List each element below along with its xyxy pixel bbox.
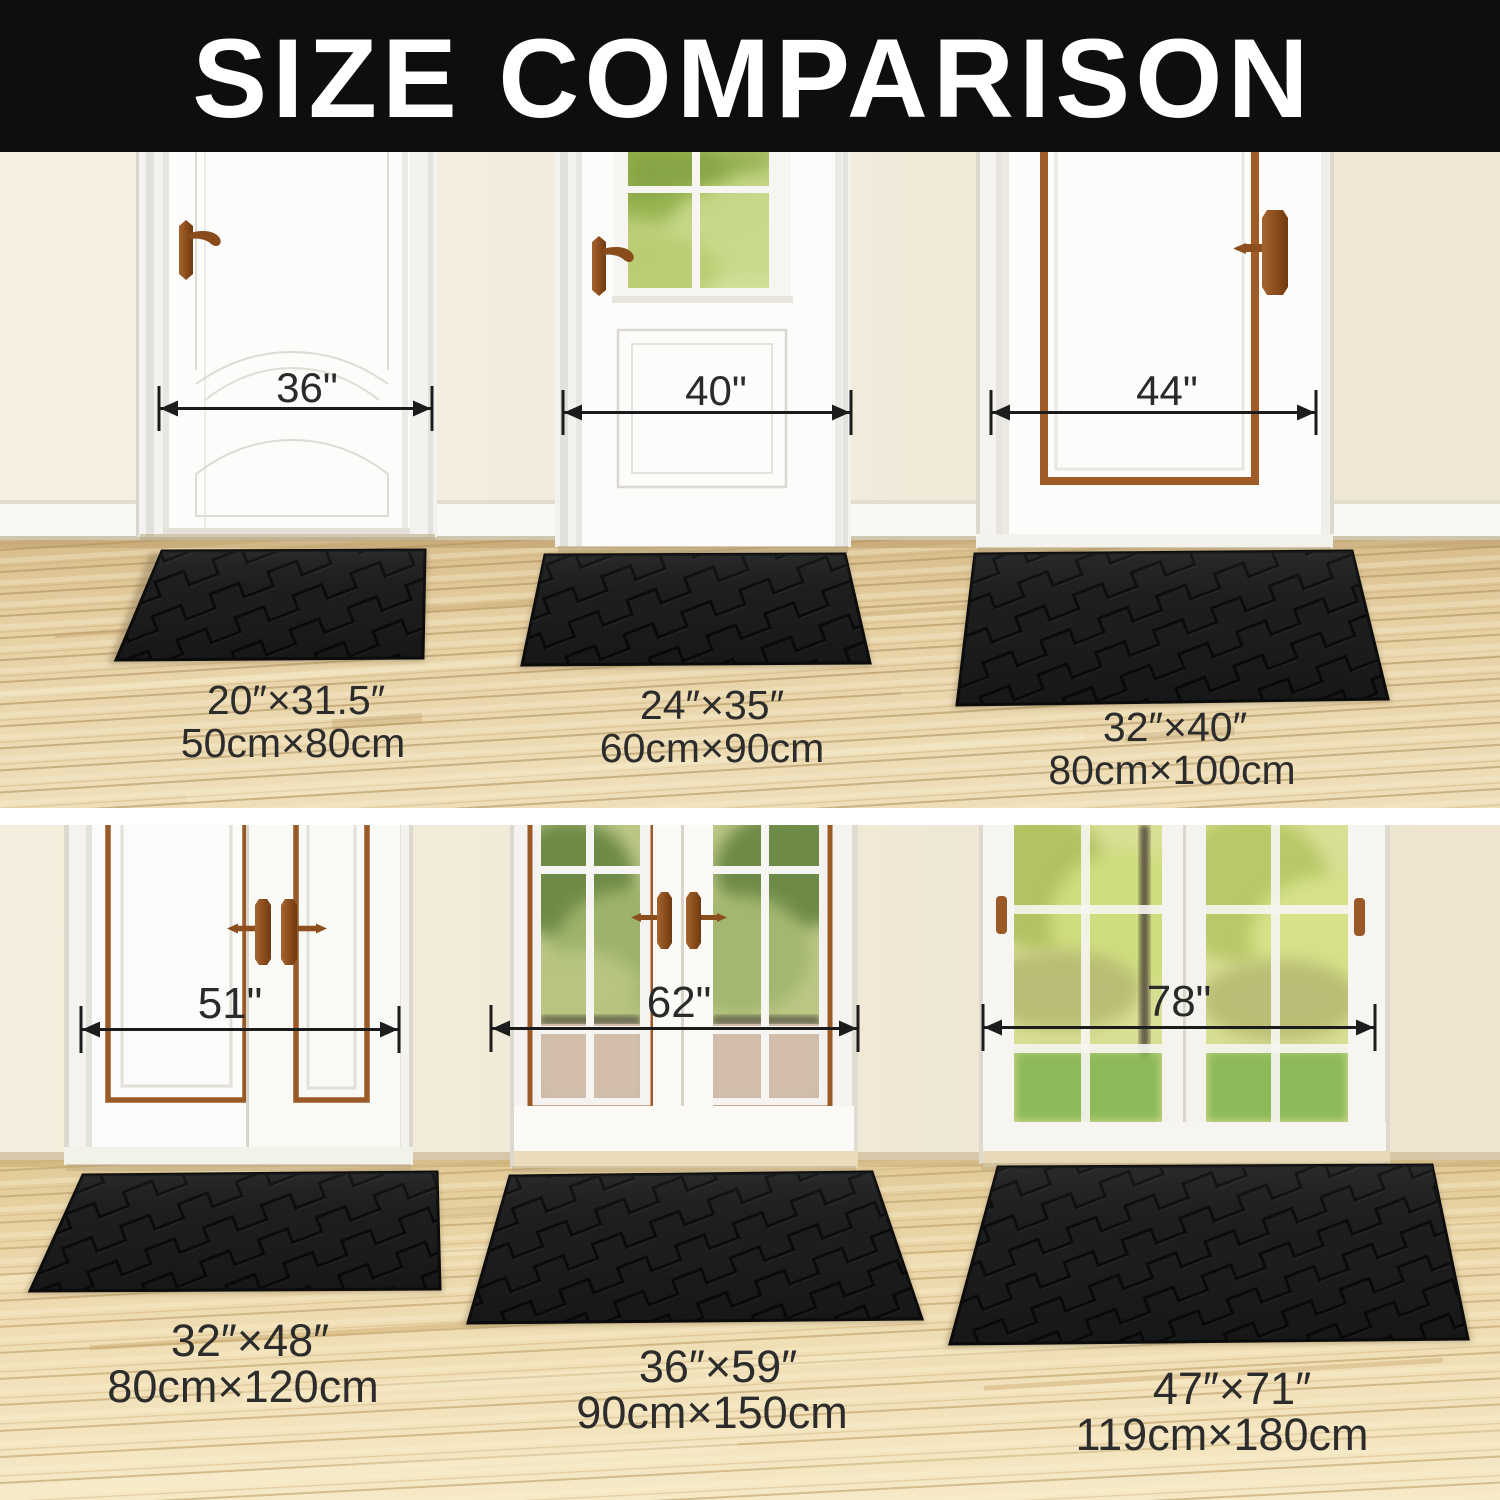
svg-text:36": 36" [276, 364, 338, 411]
svg-text:60cm×90cm: 60cm×90cm [600, 725, 824, 771]
svg-text:90cm×150cm: 90cm×150cm [576, 1387, 847, 1438]
svg-text:44": 44" [1136, 367, 1198, 414]
svg-text:32″×40″: 32″×40″ [1103, 704, 1247, 750]
svg-text:119cm×180cm: 119cm×180cm [1075, 1409, 1368, 1460]
svg-text:36″×59″: 36″×59″ [639, 1341, 797, 1392]
svg-text:40": 40" [685, 367, 747, 414]
svg-text:80cm×120cm: 80cm×120cm [107, 1361, 378, 1412]
svg-text:20″×31.5″: 20″×31.5″ [207, 677, 385, 723]
svg-text:50cm×80cm: 50cm×80cm [181, 720, 405, 766]
svg-text:47″×71″: 47″×71″ [1153, 1363, 1311, 1414]
svg-text:51": 51" [198, 979, 263, 1028]
svg-text:78": 78" [1147, 977, 1212, 1026]
svg-text:SIZE COMPARISON: SIZE COMPARISON [192, 16, 1313, 141]
svg-text:24″×35″: 24″×35″ [640, 682, 784, 728]
svg-text:62": 62" [647, 978, 712, 1027]
svg-text:32″×48″: 32″×48″ [171, 1315, 329, 1366]
svg-text:80cm×100cm: 80cm×100cm [1048, 747, 1295, 793]
